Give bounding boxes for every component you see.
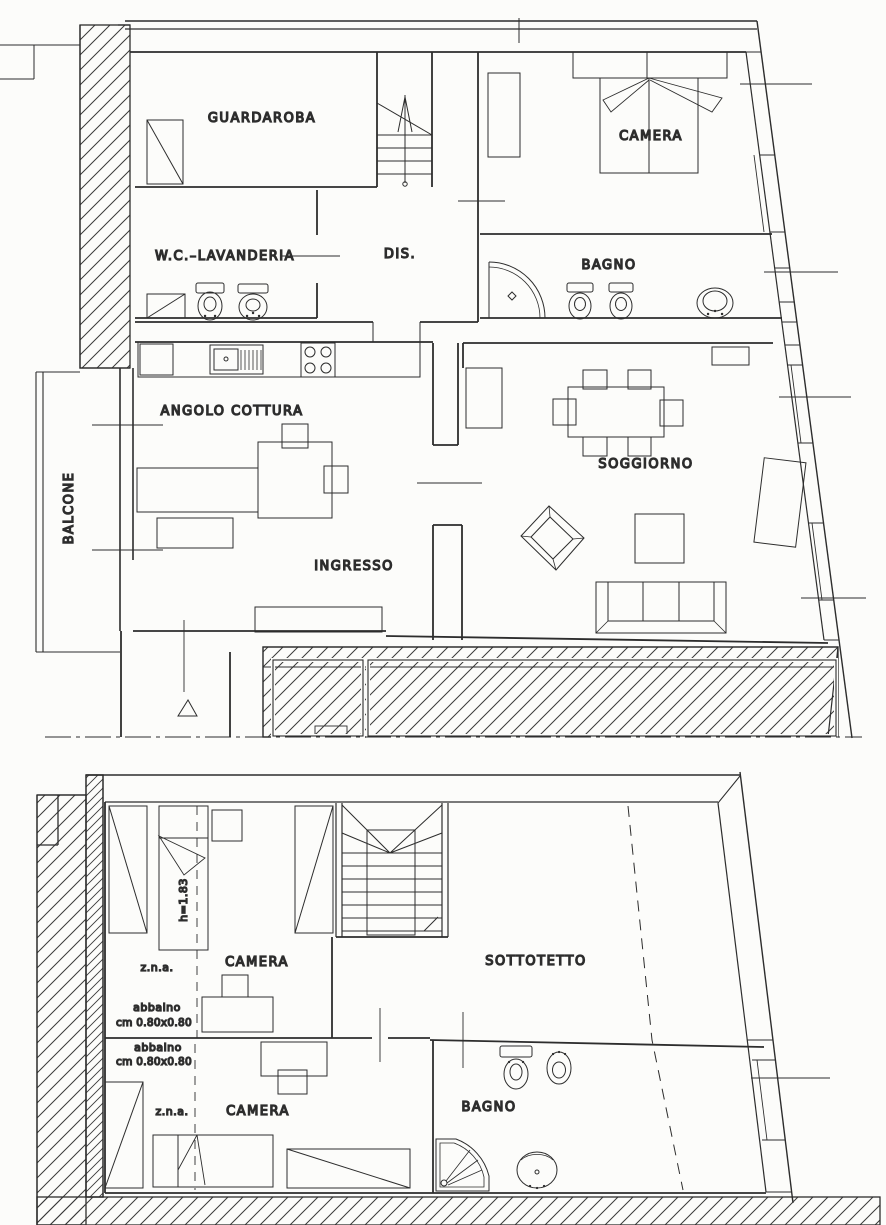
lower-floor-plan: CAMERA z.n.a. h=1.83 abbaino cm 0.80x0.8… [37, 772, 880, 1225]
label-abbaino-2-size: cm 0.80x0.80 [116, 1056, 192, 1068]
label-camera-lower-1: CAMERA [225, 955, 289, 970]
kitchen-counter [138, 342, 420, 377]
upper-bathroom [480, 234, 782, 319]
label-abbaino-1-size: cm 0.80x0.80 [116, 1017, 192, 1029]
central-spine-walls [417, 343, 482, 640]
upper-service-rooms-walls [135, 52, 505, 342]
upper-bedroom [488, 52, 727, 173]
upper-stairs [377, 95, 432, 186]
balcony [36, 368, 163, 652]
lower-bathroom-fixtures [436, 1046, 571, 1191]
floorplan-sheet: GUARDAROBA CAMERA W.C.–LAVANDERIA DIS. B… [0, 0, 886, 1225]
label-abbaino-1: abbaino [133, 1001, 181, 1014]
label-abbaino-2: abbaino [134, 1041, 182, 1054]
label-bagno-lower: BAGNO [461, 1100, 516, 1115]
label-zna-2: z.n.a. [156, 1105, 189, 1118]
label-angolo-cottura: ANGOLO COTTURA [161, 404, 304, 419]
neighbor-hatched-block [263, 647, 838, 737]
label-wc-lavanderia: W.C.–LAVANDERIA [155, 249, 295, 264]
label-disimpegno: DIS. [384, 247, 416, 262]
label-bagno-upper: BAGNO [581, 258, 636, 273]
lower-interior-walls [105, 937, 764, 1193]
label-camera-lower-2: CAMERA [226, 1104, 290, 1119]
lower-bottom-hatch [37, 1193, 880, 1225]
hall-furniture [137, 424, 382, 632]
lower-stairs [336, 803, 448, 937]
attic-height-dashed-line [628, 806, 683, 1190]
label-balcone: BALCONE [62, 472, 77, 545]
label-height-note: h=1.83 [177, 878, 190, 922]
floorplan-drawing: GUARDAROBA CAMERA W.C.–LAVANDERIA DIS. B… [0, 0, 886, 1225]
label-guardaroba: GUARDAROBA [208, 111, 316, 126]
label-camera-upper: CAMERA [619, 129, 683, 144]
closet-cabinets [147, 120, 185, 318]
lower-left-wall-hatch [37, 775, 103, 1225]
wc-lavanderia-fixtures [196, 283, 268, 320]
label-soggiorno: SOGGIORNO [598, 457, 693, 472]
label-sottotetto: SOTTOTETTO [485, 954, 586, 969]
label-zna-1: z.n.a. [141, 961, 174, 974]
living-room [463, 343, 806, 633]
upper-left-wall-hatch [0, 25, 130, 368]
label-ingresso: INGRESSO [314, 559, 394, 574]
upper-outer-walls [125, 18, 866, 738]
upper-floor-plan: GUARDAROBA CAMERA W.C.–LAVANDERIA DIS. B… [0, 18, 866, 738]
